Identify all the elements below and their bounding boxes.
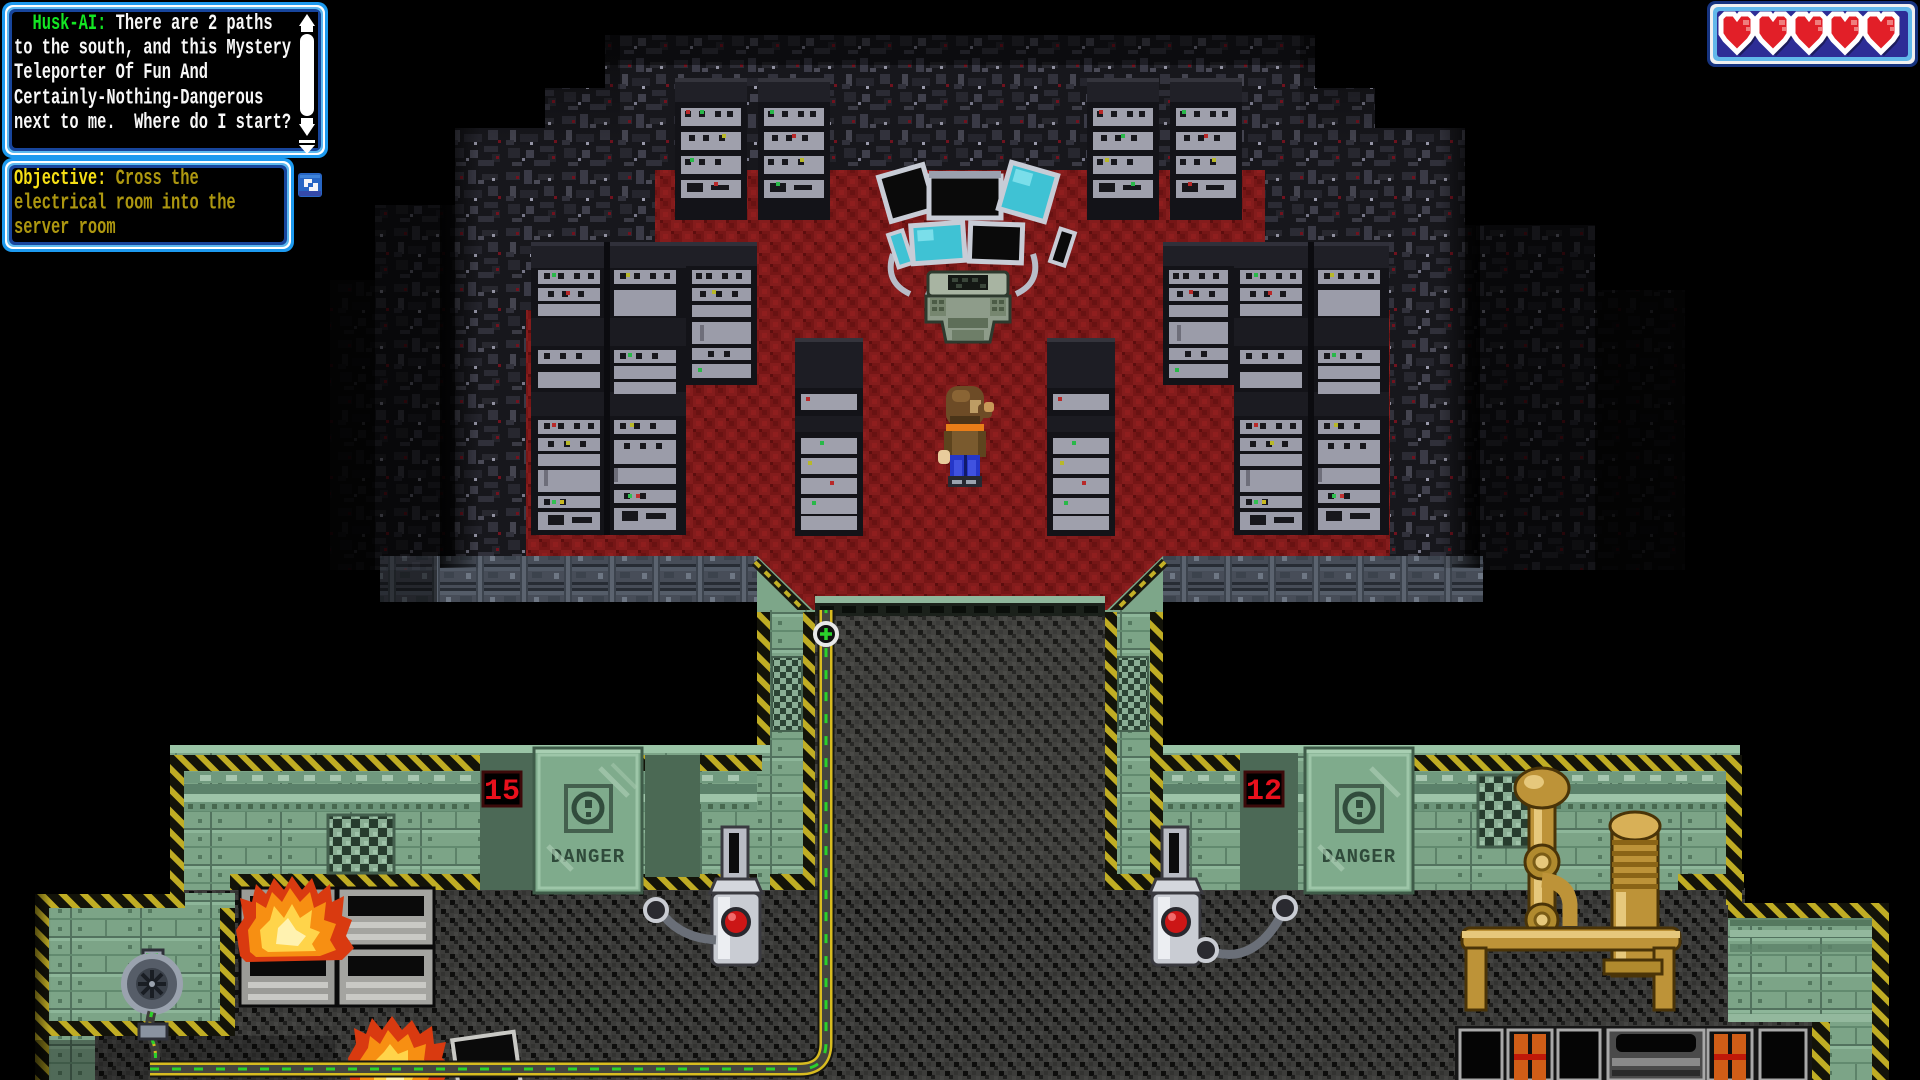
svg-text:15: 15: [484, 775, 520, 809]
svg-text:12: 12: [1246, 775, 1282, 809]
